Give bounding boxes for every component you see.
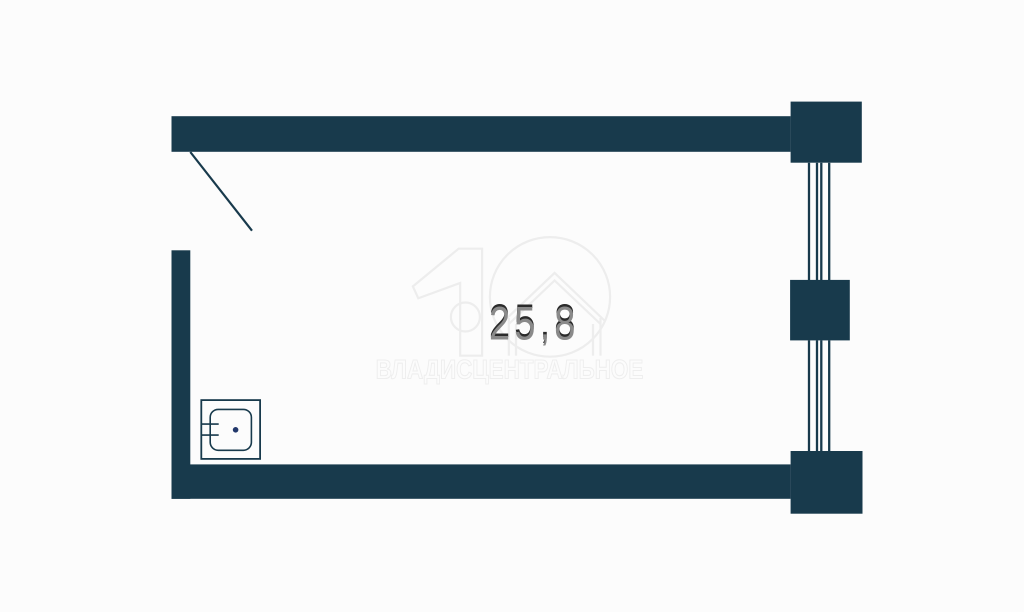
svg-text:25,8: 25,8 bbox=[489, 297, 580, 350]
svg-text:ВЛАДИСЦЕНТРАЛЬНОЕ: ВЛАДИСЦЕНТРАЛЬНОЕ bbox=[376, 355, 644, 385]
